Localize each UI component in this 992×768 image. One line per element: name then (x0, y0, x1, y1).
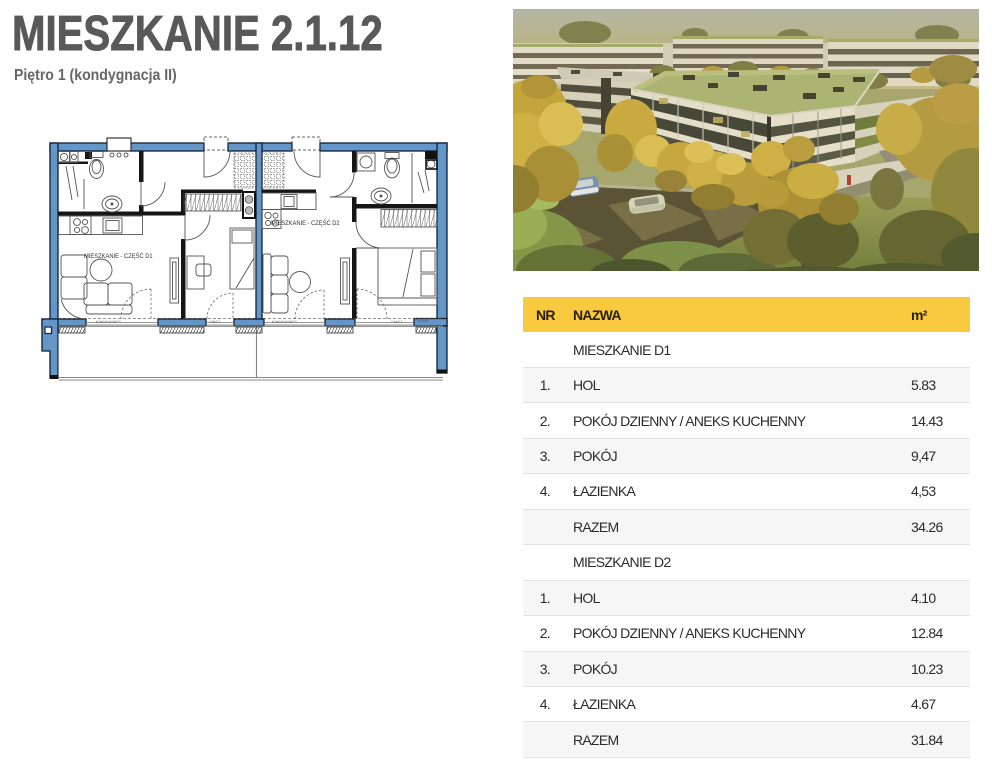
svg-text:Ng=0m: Ng=0m (417, 319, 428, 323)
svg-text:6,0x0,5=6,0x2,1: 6,0x0,5=6,0x2,1 (272, 320, 297, 324)
svg-text:6,0x0,5=6,0x2,1: 6,0x0,5=6,0x2,1 (96, 320, 121, 324)
svg-text:1,8x2,1: 1,8x2,1 (209, 320, 221, 324)
svg-text:MIESZKANIE - CZĘŚĆ D2: MIESZKANIE - CZĘŚĆ D2 (271, 217, 340, 227)
svg-text:MIESZKANIE - CZĘŚĆ D1: MIESZKANIE - CZĘŚĆ D1 (84, 250, 153, 260)
svg-text:1,9x2,1: 1,9x2,1 (391, 320, 403, 324)
